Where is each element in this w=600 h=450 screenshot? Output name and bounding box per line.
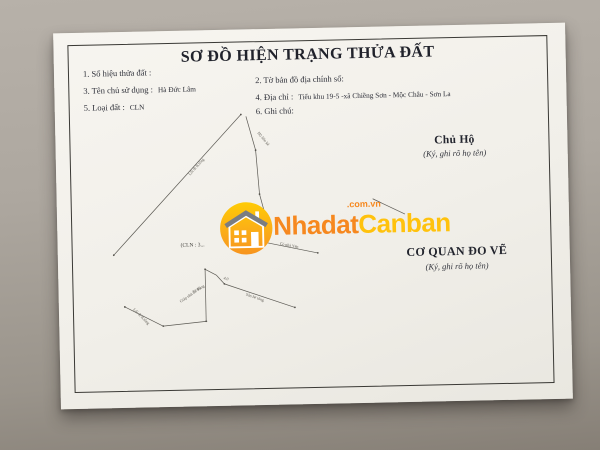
svg-text:Lối đi B.tông: Lối đi B.tông [132,307,151,326]
paper-sheet: SƠ ĐỒ HIỆN TRẠNG THỬA ĐẤT 1. Số hiệu thử… [53,23,573,410]
house-logo-icon [218,200,275,257]
signature-owner-title: Chủ Hộ [369,132,539,148]
signature-owner: Chủ Hộ (Ký, ghi rõ họ tên) [369,132,539,160]
watermark: NhadatCanban .com.vn [218,194,459,263]
svg-text:(CLN : 3...: (CLN : 3... [181,241,206,249]
brand-text: NhadatCanban [273,207,451,242]
svg-text:Lối đi B.tông: Lối đi B.tông [187,157,205,176]
brand-domain: .com.vn [347,199,381,210]
form-border: SƠ ĐỒ HIỆN TRẠNG THỬA ĐẤT 1. Số hiệu thử… [67,35,554,393]
svg-text:Giáp nhà Ô. Tùng: Giáp nhà Ô. Tùng [179,283,206,303]
svg-text:Sân bê tông: Sân bê tông [245,292,264,303]
svg-text:Hộ liền kề: Hộ liền kề [256,131,271,147]
svg-text:4.0: 4.0 [223,275,229,281]
brand-part2: Canban [358,207,451,239]
brand-part1: Nhadat [273,209,359,241]
